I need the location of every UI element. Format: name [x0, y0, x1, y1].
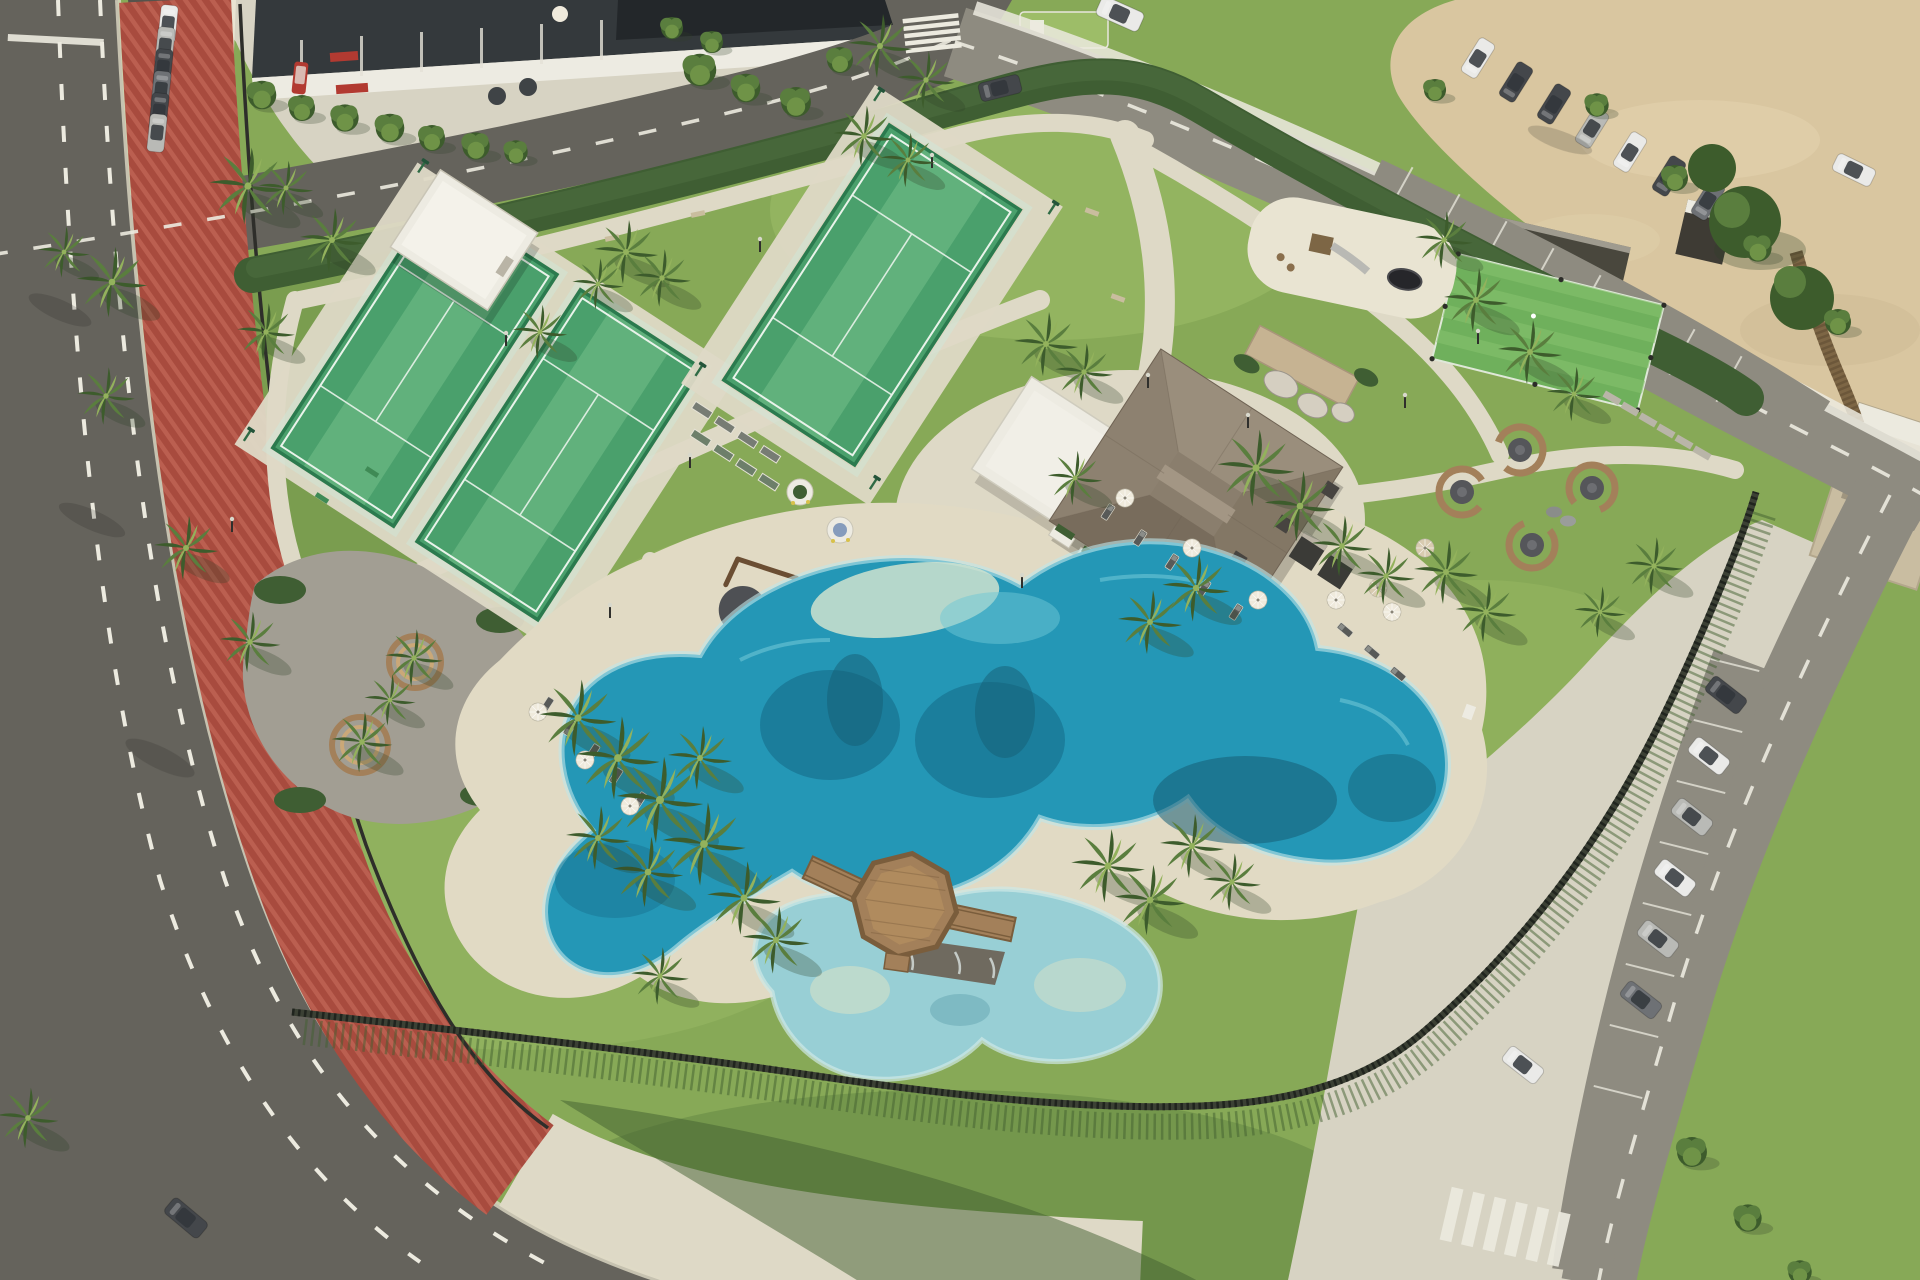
aerial-photo: [0, 0, 1920, 1280]
dark-parasol: [488, 87, 506, 105]
scene-canvas: [0, 0, 1920, 1280]
